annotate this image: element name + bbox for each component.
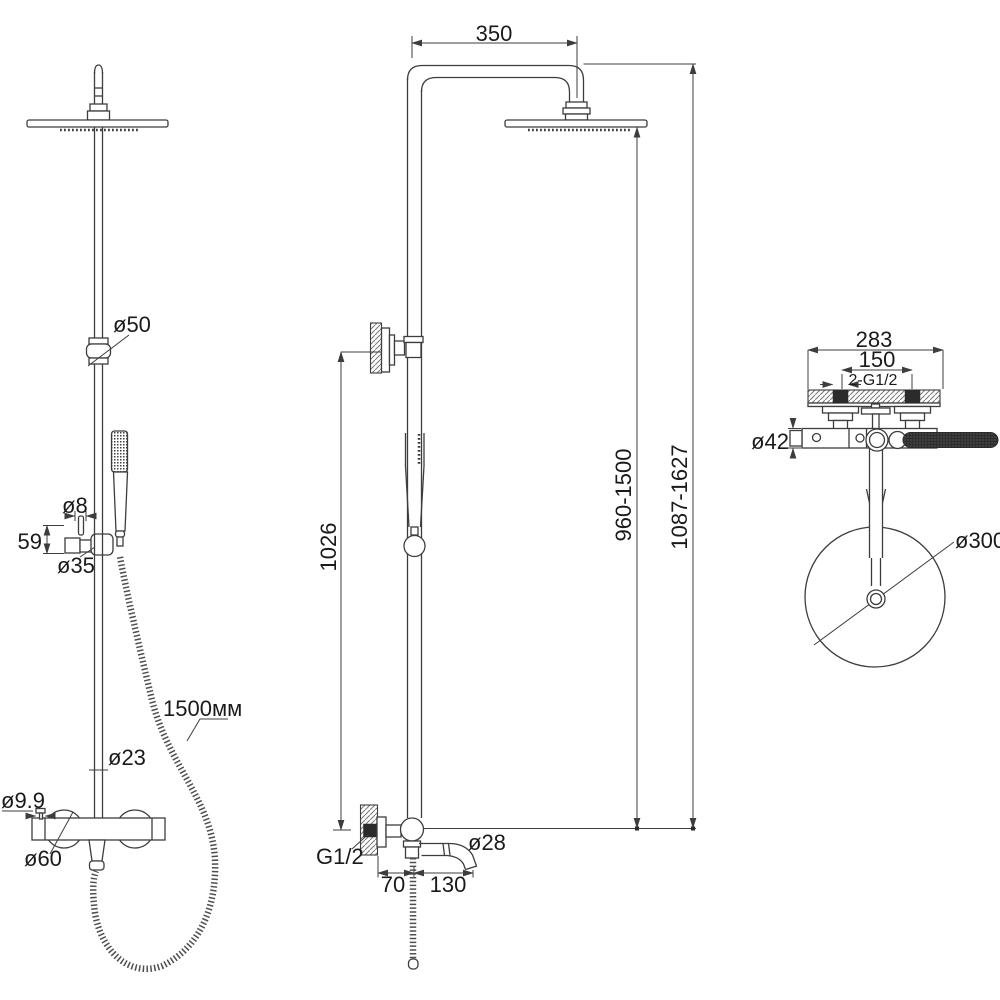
label-d35: ø35: [57, 553, 95, 578]
label-d23: ø23: [108, 745, 146, 770]
label-d300: ø300: [955, 528, 1000, 553]
leader-hose-length: [187, 719, 228, 741]
hand-shower: [112, 431, 128, 546]
rain-shower-head-side: [505, 120, 647, 130]
center-diverter-top: [862, 404, 891, 429]
label-hose-length: 1500мм: [163, 696, 242, 721]
top-view: 283 150 2-G1/2 ø42 ø300: [751, 327, 1000, 667]
drawing-canvas: ø50 ø8 59 ø35 1500мм ø23 ø9.9 ø60: [0, 0, 1000, 1000]
label-960-1500: 960-1500: [611, 449, 636, 542]
label-350: 350: [476, 21, 513, 46]
label-130: 130: [430, 872, 467, 897]
label-d42: ø42: [751, 429, 789, 454]
shower-arm: [408, 66, 591, 819]
label-150: 150: [859, 347, 896, 372]
hand-shower-holder: [65, 516, 113, 555]
lever-handle: [903, 433, 998, 448]
label-1026: 1026: [316, 523, 341, 572]
label-2g12: 2-G1/2: [849, 372, 898, 389]
dim-1026: [333, 352, 382, 830]
right-handle-top: [895, 407, 931, 430]
label-d9-9: ø9.9: [1, 788, 45, 813]
slide-connector: [87, 335, 130, 366]
label-d60: ø60: [24, 846, 62, 871]
leader-d300: [814, 542, 954, 645]
hose-tip: [409, 959, 419, 969]
lower-wall-bracket: [361, 805, 402, 855]
diverter-valve: [401, 818, 424, 858]
label-d50: ø50: [113, 312, 151, 337]
label-d8: ø8: [62, 493, 88, 518]
rain-shower-head: [27, 120, 168, 130]
label-70: 70: [381, 872, 405, 897]
arm-pipe-top: [867, 448, 886, 608]
dim-heights: [424, 64, 696, 830]
dim-59: [43, 526, 64, 554]
left-handle-top: [823, 407, 859, 430]
upper-wall-bracket: [371, 323, 424, 373]
label-59: 59: [18, 529, 42, 554]
label-g12: G1/2: [316, 844, 364, 869]
shower-technical-drawing: ø50 ø8 59 ø35 1500мм ø23 ø9.9 ø60: [0, 0, 1000, 1000]
label-1087-1627: 1087-1627: [667, 444, 692, 549]
label-d28: ø28: [468, 830, 506, 855]
riser-pipe: [88, 65, 110, 818]
side-view: 350 1026 960-1500 1087-1627 G1/2 ø28 70 …: [316, 21, 696, 969]
front-view: ø50 ø8 59 ø35 1500мм ø23 ø9.9 ø60: [1, 65, 242, 969]
